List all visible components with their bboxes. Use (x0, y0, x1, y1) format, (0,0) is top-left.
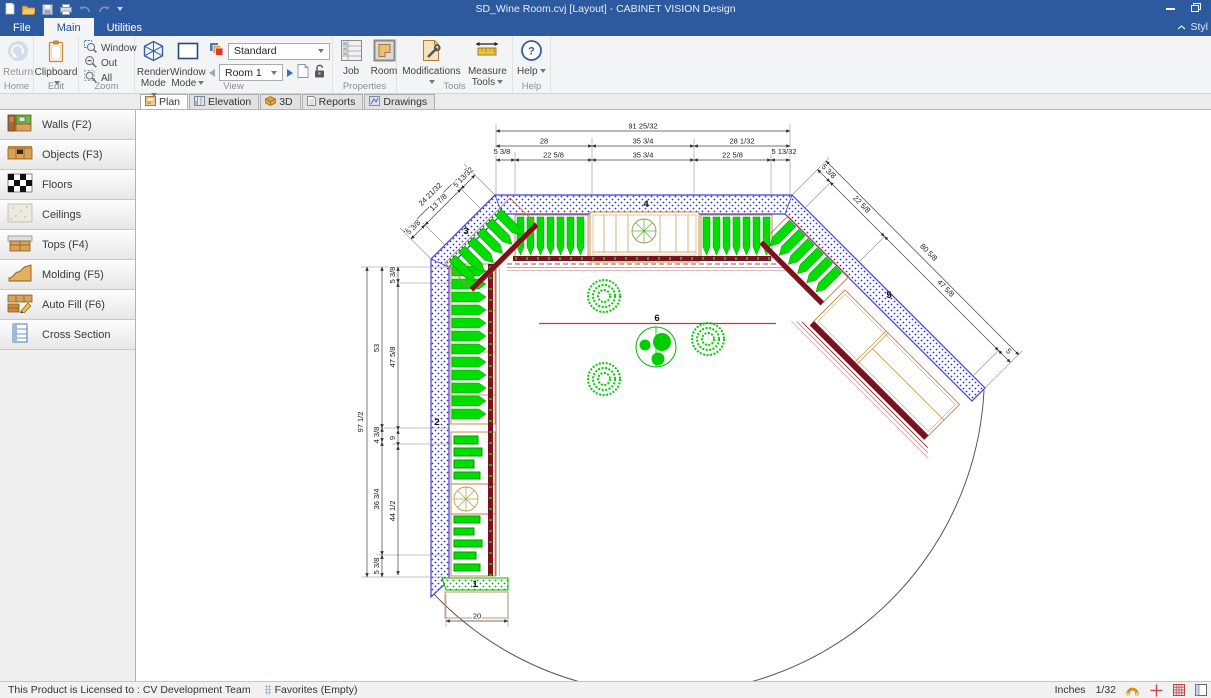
measure-tools-icon (475, 39, 499, 66)
svg-text:?: ? (528, 46, 535, 58)
chevron-up-icon (1177, 21, 1186, 33)
svg-text:5 3/8: 5 3/8 (404, 218, 422, 236)
zoom-window-button[interactable]: Window (81, 41, 140, 55)
return-button[interactable]: Return (2, 38, 34, 78)
room-arc-wall[interactable] (432, 390, 984, 681)
svg-text:5 3/8: 5 3/8 (372, 558, 381, 575)
barrel[interactable] (692, 323, 724, 355)
floors-icon (7, 173, 33, 196)
svg-text:4 3/8: 4 3/8 (372, 427, 381, 444)
clipboard-icon (45, 39, 67, 67)
room-button[interactable]: Room (368, 38, 400, 77)
favorites-label[interactable]: Favorites (Empty) (275, 684, 358, 696)
ribbon-group-tools: Modifications Measure Tools Tools (397, 36, 513, 93)
barrel[interactable] (588, 280, 620, 312)
tab-3d[interactable]: 3D (260, 94, 300, 109)
drag-handle[interactable] (265, 685, 271, 695)
svg-text:36 3/4: 36 3/4 (372, 489, 381, 510)
group-caption-zoom: Zoom (79, 81, 134, 92)
group-caption-tools: Tools (397, 81, 512, 92)
walls-icon (7, 113, 33, 136)
elevation-icon (194, 96, 205, 109)
menu-tab-utilities[interactable]: Utilities (94, 18, 155, 36)
reports-icon (307, 96, 316, 109)
top-lattice-circle (632, 219, 656, 243)
style-panel-label: Styl (1190, 21, 1208, 33)
group-caption-edit: Edit (34, 81, 78, 92)
svg-text:91 25/32: 91 25/32 (628, 122, 657, 131)
menu-bar: File Main Utilities Styl (0, 18, 1211, 36)
svg-text:22 5/8: 22 5/8 (543, 151, 564, 160)
ribbon: Return Home Clipboard Edit Window Out (0, 36, 1211, 94)
dimensions-bottom: 20 (446, 594, 508, 627)
svg-text:28: 28 (540, 137, 548, 146)
counter-edges (496, 264, 787, 576)
room-icon (373, 39, 396, 66)
svg-text:35 3/4: 35 3/4 (633, 151, 654, 160)
zoom-out-button[interactable]: Out (81, 56, 140, 70)
style-panel-toggle[interactable]: Styl (1177, 18, 1211, 36)
style-select[interactable]: Standard (228, 43, 330, 60)
top-front-rail (513, 256, 771, 261)
auto-fill-icon (7, 293, 33, 316)
qat-customize-caret[interactable] (117, 7, 123, 11)
modifications-icon (420, 39, 442, 66)
tab-elevation[interactable]: Elevation (189, 94, 259, 109)
window-mode-icon (175, 39, 201, 67)
svg-text:97 1/2: 97 1/2 (356, 412, 365, 433)
svg-text:4: 4 (643, 199, 649, 210)
zoom-window-icon (84, 40, 97, 56)
svg-text:47 5/8: 47 5/8 (388, 347, 397, 368)
svg-text:5 13/32: 5 13/32 (451, 165, 475, 189)
svg-text:5: 5 (886, 290, 892, 301)
tops-icon (7, 233, 33, 256)
dropdown-caret-icon (271, 71, 277, 75)
lock-icon[interactable] (313, 64, 326, 81)
svg-text:22 5/8: 22 5/8 (722, 151, 743, 160)
svg-text:44 1/2: 44 1/2 (388, 501, 397, 522)
sidebar-item-molding[interactable]: Molding (F5) (0, 260, 135, 290)
group-caption-properties: Properties (333, 81, 396, 92)
render-mode-icon (141, 39, 166, 67)
redo-icon[interactable] (98, 4, 110, 14)
quick-access-toolbar (0, 3, 123, 15)
svg-text:5 13/32: 5 13/32 (771, 147, 796, 156)
print-icon[interactable] (60, 4, 72, 15)
ribbon-group-help: ? Help Help (513, 36, 551, 93)
dimensions-top: 91 25/32 28 35 3/4 28 1/32 5 3/8 22 5/8 … (494, 122, 797, 196)
sidebar-item-objects[interactable]: Objects (F3) (0, 140, 135, 170)
grid-icon[interactable] (1173, 684, 1185, 696)
scale-indicator[interactable]: 1/32 (1096, 684, 1116, 696)
undo-icon[interactable] (79, 4, 91, 14)
sidebar-item-tops[interactable]: Tops (F4) (0, 230, 135, 260)
top-wall-cabinets[interactable] (513, 212, 772, 262)
ceilings-icon (7, 203, 33, 226)
ribbon-group-zoom: Window Out All Zoom (79, 36, 135, 93)
svg-text:5 3/8: 5 3/8 (820, 162, 838, 180)
svg-text:6: 6 (654, 313, 659, 324)
svg-text:35 3/4: 35 3/4 (633, 137, 654, 146)
room-select[interactable]: Room 1 (219, 64, 283, 81)
svg-text:9: 9 (388, 436, 397, 440)
sidebar-item-cross-section[interactable]: Cross Section (0, 320, 135, 350)
drawings-icon (369, 96, 380, 109)
svg-text:53: 53 (372, 344, 381, 352)
open-file-icon[interactable] (22, 4, 35, 15)
title-bar: SD_Wine Room.cvj [Layout] - CABINET VISI… (0, 0, 1211, 18)
next-room-button[interactable] (287, 69, 293, 77)
help-icon: ? (520, 39, 543, 66)
layers-icon[interactable] (209, 42, 224, 60)
tool-palette-sidebar: Walls (F2) Objects (F3) Floors Ceilings … (0, 110, 136, 681)
tab-drawings[interactable]: Drawings (364, 94, 435, 109)
status-bar: This Product is Licensed to : CV Develop… (0, 681, 1211, 698)
svg-text:28 1/32: 28 1/32 (729, 137, 754, 146)
window-title: SD_Wine Room.cvj [Layout] - CABINET VISI… (0, 3, 1211, 15)
sidebar-item-floors[interactable]: Floors (0, 170, 135, 200)
drawing-canvas[interactable]: 91 25/32 28 35 3/4 28 1/32 5 3/8 22 5/8 … (136, 110, 1211, 681)
panel-layout-icon[interactable] (1195, 684, 1207, 696)
svg-text:2: 2 (434, 417, 439, 428)
cube-3d-icon (265, 96, 276, 109)
job-button[interactable]: Job (335, 38, 367, 77)
sidebar-item-autofill[interactable]: Auto Fill (F6) (0, 290, 135, 320)
tab-reports[interactable]: Reports (302, 94, 364, 109)
ribbon-group-view: Render Mode Window Mode Standard Roo (135, 36, 333, 93)
units-indicator[interactable]: Inches (1055, 684, 1086, 696)
svg-text:5: 5 (1004, 347, 1013, 356)
barrel[interactable] (588, 363, 620, 395)
save-icon[interactable] (42, 4, 53, 15)
new-file-icon[interactable] (5, 3, 15, 15)
document-tab-bar: Plan Elevation 3D Reports Drawings (0, 94, 1211, 110)
group-caption-home: Home (0, 81, 33, 92)
plan-view-drawing[interactable]: 91 25/32 28 35 3/4 28 1/32 5 3/8 22 5/8 … (136, 110, 1210, 681)
job-icon (340, 39, 363, 66)
svg-text:5 3/8: 5 3/8 (494, 147, 511, 156)
center-table[interactable] (636, 327, 676, 367)
svg-text:22 5/8: 22 5/8 (851, 194, 872, 215)
group-caption-view: View (135, 81, 332, 92)
objects-icon (7, 143, 33, 166)
help-button[interactable]: ? Help (515, 38, 548, 77)
sidebar-item-ceilings[interactable]: Ceilings (0, 200, 135, 230)
svg-text:3: 3 (463, 226, 468, 237)
zoom-out-icon (84, 55, 97, 71)
svg-text:1: 1 (472, 579, 478, 590)
previous-room-button[interactable] (209, 69, 215, 77)
dropdown-caret-icon (318, 49, 324, 53)
ribbon-group-properties: Job Room Properties (333, 36, 397, 93)
left-wall-cabinets[interactable] (451, 264, 495, 576)
minimize-button[interactable] (1166, 8, 1175, 10)
crosshair-icon[interactable] (1150, 684, 1163, 697)
svg-text:5 3/8: 5 3/8 (388, 267, 397, 284)
molding-icon (7, 263, 33, 286)
dropdown-caret-icon (540, 69, 546, 73)
snap-icon[interactable] (1126, 685, 1140, 696)
ribbon-group-edit: Clipboard Edit (34, 36, 79, 93)
sidebar-item-walls[interactable]: Walls (F2) (0, 110, 135, 140)
ribbon-group-home: Return Home (0, 36, 34, 93)
restore-button[interactable] (1191, 3, 1201, 15)
license-text: This Product is Licensed to : CV Develop… (0, 684, 261, 696)
svg-text:80 5/8: 80 5/8 (918, 242, 939, 263)
svg-text:20: 20 (473, 612, 481, 621)
new-room-icon[interactable] (297, 64, 309, 81)
return-icon (6, 39, 30, 67)
cross-section-icon (7, 323, 33, 346)
dropdown-caret-icon (151, 93, 157, 97)
menu-tab-file[interactable]: File (0, 18, 44, 36)
group-caption-help: Help (513, 81, 550, 92)
menu-tab-main[interactable]: Main (44, 18, 94, 36)
svg-text:47 5/8: 47 5/8 (935, 278, 956, 299)
left-lattice-circle (454, 487, 478, 511)
